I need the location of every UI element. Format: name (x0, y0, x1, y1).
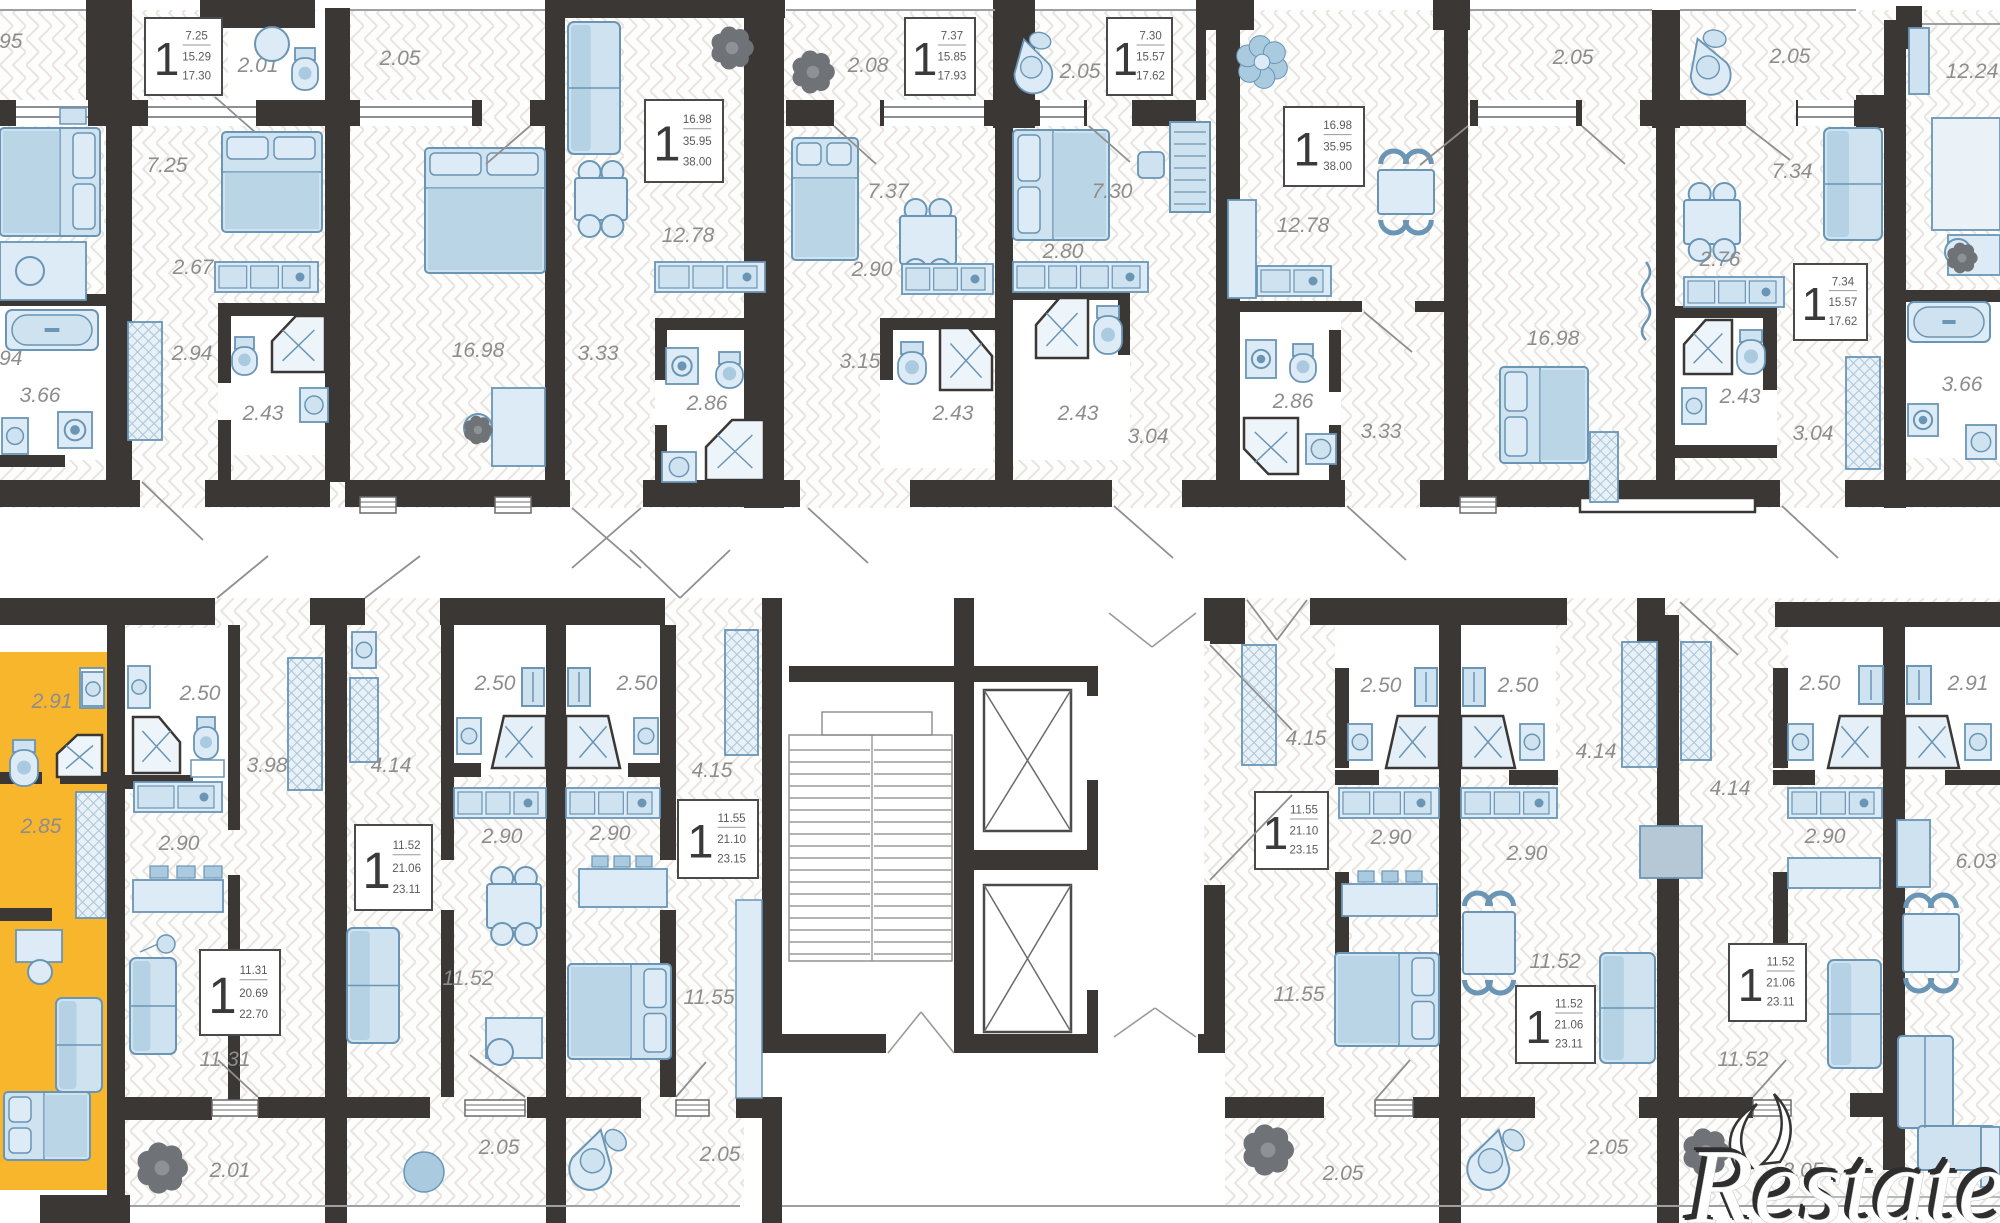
svg-text:1: 1 (362, 842, 390, 899)
svg-text:15.85: 15.85 (938, 51, 967, 63)
svg-text:1: 1 (1112, 33, 1138, 85)
svg-text:1: 1 (1802, 278, 1828, 330)
svg-text:2.90: 2.90 (481, 825, 523, 848)
svg-text:2.50: 2.50 (474, 672, 516, 695)
svg-text:12.78: 12.78 (1277, 214, 1330, 237)
svg-text:2.05: 2.05 (699, 1143, 741, 1166)
svg-text:3.33: 3.33 (1361, 420, 1402, 443)
svg-text:11.52: 11.52 (443, 967, 494, 990)
svg-text:17.62: 17.62 (1829, 316, 1858, 328)
svg-text:17.93: 17.93 (938, 71, 967, 83)
svg-text:2.50: 2.50 (1360, 674, 1402, 697)
svg-text:21.10: 21.10 (1290, 825, 1319, 837)
svg-text:23.11: 23.11 (393, 884, 421, 896)
svg-text:2.05: 2.05 (1322, 1162, 1364, 1185)
svg-text:2.86: 2.86 (1272, 390, 1314, 413)
svg-text:2.50: 2.50 (179, 682, 221, 705)
svg-text:2.67: 2.67 (172, 256, 215, 279)
svg-text:7.25: 7.25 (147, 154, 188, 177)
svg-text:23.11: 23.11 (1555, 1039, 1583, 1051)
svg-text:15.29: 15.29 (182, 51, 211, 63)
svg-text:2.05: 2.05 (1769, 45, 1811, 68)
svg-text:2.94: 2.94 (171, 342, 213, 365)
svg-text:1: 1 (1263, 807, 1289, 859)
svg-text:3.33: 3.33 (578, 342, 619, 365)
svg-text:3.15: 3.15 (840, 350, 881, 373)
svg-text:2.85: 2.85 (20, 815, 62, 838)
svg-text:11.52: 11.52 (1530, 950, 1581, 973)
svg-text:2.01: 2.01 (209, 1159, 251, 1182)
svg-text:2.43: 2.43 (932, 402, 974, 425)
svg-text:2.43: 2.43 (1057, 402, 1099, 425)
svg-text:2.90: 2.90 (851, 258, 893, 281)
svg-text:4.14: 4.14 (371, 754, 412, 777)
svg-text:7.34: 7.34 (1832, 276, 1855, 288)
svg-text:20.69: 20.69 (239, 988, 268, 1000)
svg-text:3.04: 3.04 (1793, 422, 1834, 445)
svg-text:1: 1 (1738, 959, 1764, 1011)
svg-text:3.66: 3.66 (1942, 373, 1983, 396)
svg-text:1: 1 (1525, 1001, 1551, 1053)
svg-text:38.00: 38.00 (1323, 161, 1352, 173)
svg-text:11.52: 11.52 (1767, 957, 1795, 969)
svg-text:7.34: 7.34 (1772, 160, 1813, 183)
svg-text:12.78: 12.78 (662, 224, 715, 247)
svg-text:4.14: 4.14 (1710, 777, 1751, 800)
svg-text:11.55: 11.55 (718, 813, 746, 825)
svg-text:Restate: Restate (1687, 1128, 2000, 1223)
svg-text:11.55: 11.55 (1274, 983, 1325, 1006)
svg-text:16.98: 16.98 (452, 339, 505, 362)
svg-text:1: 1 (653, 118, 680, 172)
svg-text:2.43: 2.43 (242, 402, 284, 425)
svg-text:7.25: 7.25 (185, 31, 207, 43)
svg-text:6.03: 6.03 (1956, 850, 1997, 873)
svg-text:11.31: 11.31 (240, 965, 268, 977)
svg-text:17.62: 17.62 (1136, 71, 1165, 83)
svg-text:16.98: 16.98 (683, 114, 712, 126)
svg-text:11.55: 11.55 (1290, 805, 1318, 817)
svg-text:21.06: 21.06 (392, 863, 421, 875)
svg-text:1: 1 (912, 33, 938, 85)
svg-text:3.66: 3.66 (20, 384, 61, 407)
svg-text:11.52: 11.52 (393, 840, 421, 852)
svg-text:38.00: 38.00 (683, 157, 712, 169)
svg-text:3.98: 3.98 (247, 754, 288, 777)
svg-text:7.30: 7.30 (1139, 31, 1161, 43)
svg-text:2.90: 2.90 (589, 822, 631, 845)
svg-text:2.95: 2.95 (0, 30, 23, 53)
svg-text:2.05: 2.05 (379, 47, 421, 70)
svg-text:11.52: 11.52 (1555, 999, 1583, 1011)
svg-text:1: 1 (687, 815, 713, 868)
svg-text:2.80: 2.80 (1042, 240, 1084, 263)
svg-text:21.06: 21.06 (1766, 977, 1795, 989)
svg-text:23.15: 23.15 (717, 853, 746, 865)
svg-text:2.91: 2.91 (1947, 672, 1989, 695)
svg-text:22.70: 22.70 (239, 1009, 268, 1021)
svg-text:2.86: 2.86 (686, 392, 728, 415)
svg-text:2.76: 2.76 (1699, 248, 1741, 271)
svg-text:15.57: 15.57 (1136, 51, 1165, 63)
svg-text:35.95: 35.95 (1323, 141, 1352, 153)
svg-text:21.10: 21.10 (717, 834, 746, 846)
svg-text:2.05: 2.05 (1059, 60, 1101, 83)
svg-text:11.52: 11.52 (1718, 1048, 1769, 1071)
svg-text:2.90: 2.90 (1804, 825, 1846, 848)
svg-text:2.94: 2.94 (0, 347, 22, 370)
svg-text:2.90: 2.90 (158, 832, 200, 855)
svg-text:1: 1 (1293, 122, 1319, 175)
svg-text:1: 1 (208, 967, 236, 1024)
svg-text:7.37: 7.37 (868, 180, 910, 203)
svg-text:16.98: 16.98 (1527, 327, 1580, 350)
svg-text:23.11: 23.11 (1767, 997, 1795, 1009)
svg-text:7.37: 7.37 (941, 31, 963, 43)
svg-text:2.05: 2.05 (478, 1136, 520, 1159)
svg-text:2.50: 2.50 (1497, 674, 1539, 697)
svg-text:11.55: 11.55 (684, 986, 735, 1009)
svg-text:2.05: 2.05 (1552, 46, 1594, 69)
svg-text:4.14: 4.14 (1576, 740, 1617, 763)
svg-text:23.15: 23.15 (1290, 845, 1319, 857)
svg-text:1: 1 (154, 33, 180, 85)
svg-text:17.30: 17.30 (182, 71, 211, 83)
svg-text:12.24: 12.24 (1946, 60, 1999, 83)
svg-text:2.91: 2.91 (31, 690, 73, 713)
svg-text:2.08: 2.08 (847, 54, 889, 77)
svg-text:3.04: 3.04 (1128, 425, 1169, 448)
svg-text:7.30: 7.30 (1092, 180, 1133, 203)
svg-text:16.98: 16.98 (1323, 120, 1352, 132)
svg-text:2.90: 2.90 (1506, 842, 1548, 865)
svg-text:2.50: 2.50 (616, 672, 658, 695)
svg-text:2.90: 2.90 (1370, 826, 1412, 849)
svg-text:15.57: 15.57 (1829, 297, 1858, 309)
svg-text:4.15: 4.15 (1286, 727, 1327, 750)
svg-text:21.06: 21.06 (1555, 1019, 1584, 1031)
svg-text:2.43: 2.43 (1719, 385, 1761, 408)
svg-text:35.95: 35.95 (683, 136, 712, 148)
svg-text:2.05: 2.05 (1587, 1136, 1629, 1159)
svg-text:2.50: 2.50 (1799, 672, 1841, 695)
svg-text:4.15: 4.15 (692, 759, 733, 782)
